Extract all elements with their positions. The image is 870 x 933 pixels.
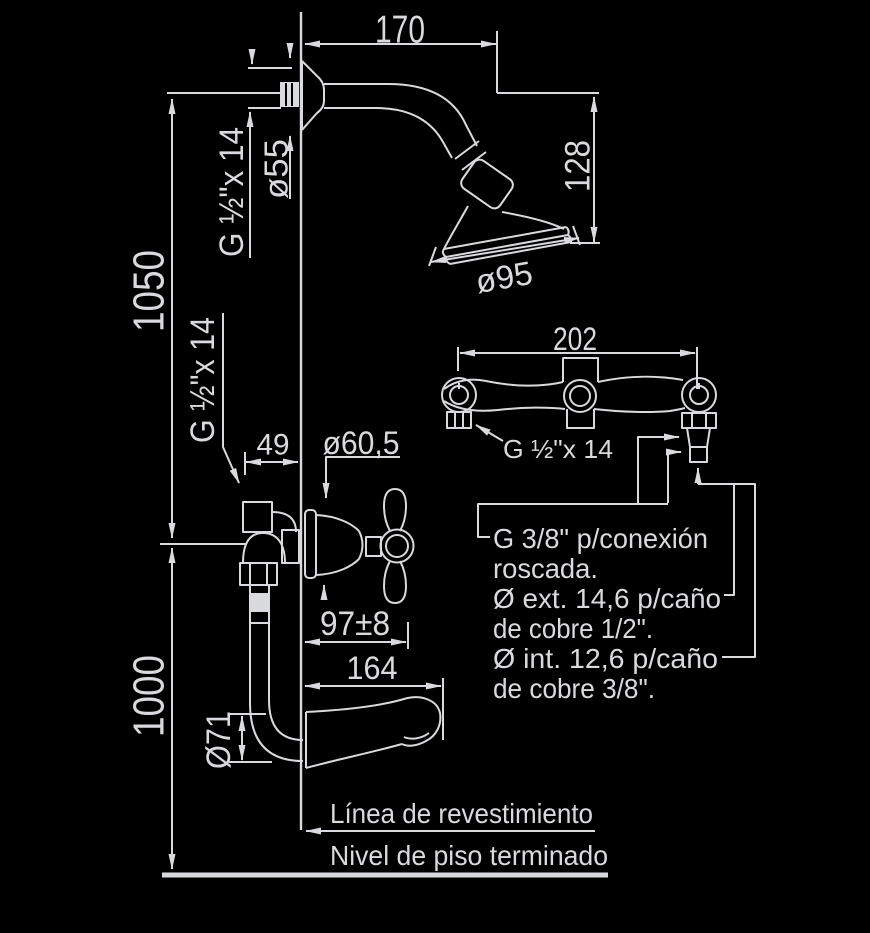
right-hex-nut [682, 413, 716, 428]
dim-o605-label: ø60,5 [323, 425, 400, 461]
arm-tube-upper [324, 84, 477, 146]
leader-ext-diam-route [724, 484, 734, 595]
spout-outlet [404, 733, 429, 739]
head-bell-right-edge [502, 212, 564, 229]
diagram-canvas: 170 ø55 G ½"x 14 128 ø95 1050 G ½"x 14 4… [0, 0, 870, 933]
dim-1000-label: 1000 [125, 655, 174, 737]
right-compression-fitting [690, 447, 707, 462]
dim-170-label: 170 [375, 9, 425, 52]
leader-g38 [638, 437, 679, 504]
union-dome [243, 533, 285, 563]
body-top-left [444, 380, 563, 389]
floor-level-label: Nivel de piso terminado [330, 840, 608, 871]
valve-bell-face [359, 531, 363, 559]
dim-164-label: 164 [347, 650, 398, 686]
handle-arm-bottom [384, 561, 406, 603]
wall-union [240, 502, 299, 585]
leader-int-diam-route [698, 484, 755, 657]
thread-right-label: G ½"x 14 [503, 434, 613, 464]
dim-164 [305, 678, 443, 740]
arm-flange [302, 61, 324, 130]
shower-arm-assembly [302, 61, 571, 264]
note-ext-line2: de cobre 1/2". [493, 613, 653, 644]
wall-nipple [280, 82, 299, 107]
thread-mid-leader [223, 313, 239, 483]
right-taper [687, 428, 710, 447]
handle-hub-inner [386, 535, 408, 557]
body-top-right [598, 377, 683, 382]
note-int-line1: Ø int. 12,6 p/caño [493, 643, 718, 674]
thread-right-leader [476, 425, 503, 441]
tube-sleeve [250, 593, 269, 612]
note-g38-line1: G 3/8" p/conexión [493, 523, 708, 554]
center-port-inner [570, 386, 590, 406]
handle-arm-top [384, 489, 406, 531]
tub-spout [306, 697, 440, 768]
tube-bend-outer [250, 703, 303, 761]
note-ext-line1: Ø ext. 14,6 p/caño [493, 583, 721, 614]
union-hex-nut [240, 563, 277, 585]
arm-collar [455, 141, 479, 159]
body-center-block [563, 358, 598, 382]
valve-assembly [305, 489, 414, 603]
thread-top-label: G ½"x 14 [213, 127, 251, 257]
arm-tube-lower [324, 108, 452, 158]
valve-stem [366, 537, 381, 556]
body-bottom-right [594, 408, 685, 412]
valve-bell-top [316, 515, 359, 531]
spout-bottom [306, 744, 402, 768]
note-g38-line2: roscada. [493, 553, 598, 584]
dim-202-label: 202 [553, 321, 597, 357]
supply-tube [250, 585, 303, 761]
dim-o71-label: Ø71 [200, 711, 238, 769]
tube-bend-inner [269, 700, 303, 740]
dim-1050-label: 1050 [125, 250, 174, 332]
valve-bell-bottom [316, 559, 359, 575]
dim-128-label: 128 [559, 140, 598, 192]
head-bell-left-edge [444, 206, 468, 249]
dim-49-label: 49 [257, 429, 290, 462]
dim-o55-label: ø55 [258, 139, 295, 199]
nipple-body [280, 82, 299, 107]
dim-o95-tick-left [429, 247, 436, 266]
thread-mid-label: G ½"x 14 [184, 317, 222, 443]
union-upper-body [243, 502, 272, 532]
center-port-outer [564, 380, 596, 412]
leader-ext-diam [668, 452, 681, 503]
faucet-installation-diagram: 170 ø55 G ½"x 14 128 ø95 1050 G ½"x 14 4… [0, 0, 870, 933]
valve-baseplate [305, 510, 316, 578]
note-int-line2: de cobre 3/8". [493, 673, 655, 704]
dim-97-label: 97±8 [320, 605, 390, 643]
left-tailpiece [447, 412, 471, 428]
wall-finish-label: Línea de revestimiento [330, 798, 593, 829]
dim-o95-label: ø95 [473, 254, 536, 300]
